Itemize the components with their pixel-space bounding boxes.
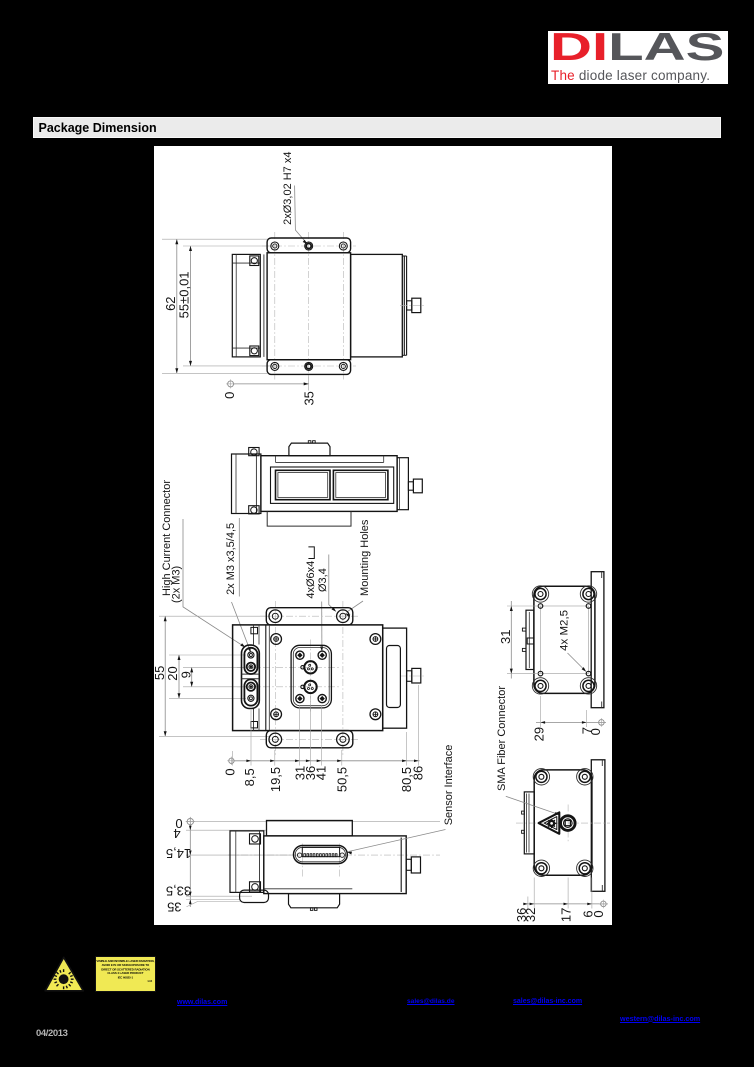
svg-text:4xØ6x4: 4xØ6x4: [305, 560, 317, 598]
svg-text:29: 29: [532, 726, 547, 740]
svg-text:50,5: 50,5: [335, 766, 350, 791]
svg-text:2xØ3,02 H7 x4: 2xØ3,02 H7 x4: [282, 151, 294, 224]
svg-text:Mounting Holes: Mounting Holes: [359, 519, 371, 596]
svg-text:19,5: 19,5: [268, 766, 283, 791]
svg-text:4x M2,5: 4x M2,5: [559, 609, 571, 650]
svg-text:14,5: 14,5: [166, 845, 191, 860]
svg-text:8,5: 8,5: [242, 768, 257, 786]
svg-text:SMA Fiber Connector: SMA Fiber Connector: [496, 685, 508, 790]
svg-text:0: 0: [223, 768, 238, 775]
svg-text:Sensor Interface: Sensor Interface: [443, 744, 455, 825]
svg-text:33,5: 33,5: [166, 883, 191, 898]
svg-text:55±0,01: 55±0,01: [177, 271, 192, 318]
svg-text:0: 0: [588, 728, 603, 735]
svg-text:0: 0: [222, 391, 237, 398]
svg-text:86: 86: [410, 765, 425, 779]
svg-text:4: 4: [173, 825, 180, 840]
svg-text:2x M3 x3,5/4,5: 2x M3 x3,5/4,5: [225, 522, 237, 594]
svg-text:62: 62: [163, 296, 178, 310]
svg-text:17: 17: [558, 907, 573, 921]
svg-text:35: 35: [301, 391, 316, 405]
svg-text:Ø3,4: Ø3,4: [317, 568, 329, 592]
svg-text:32: 32: [523, 907, 538, 921]
svg-text:31: 31: [498, 629, 513, 643]
svg-text:41: 41: [313, 765, 328, 779]
svg-text:0: 0: [591, 910, 606, 917]
svg-text:9: 9: [179, 671, 194, 678]
svg-text:35: 35: [167, 899, 181, 914]
svg-text:(2x M3): (2x M3): [171, 565, 183, 602]
